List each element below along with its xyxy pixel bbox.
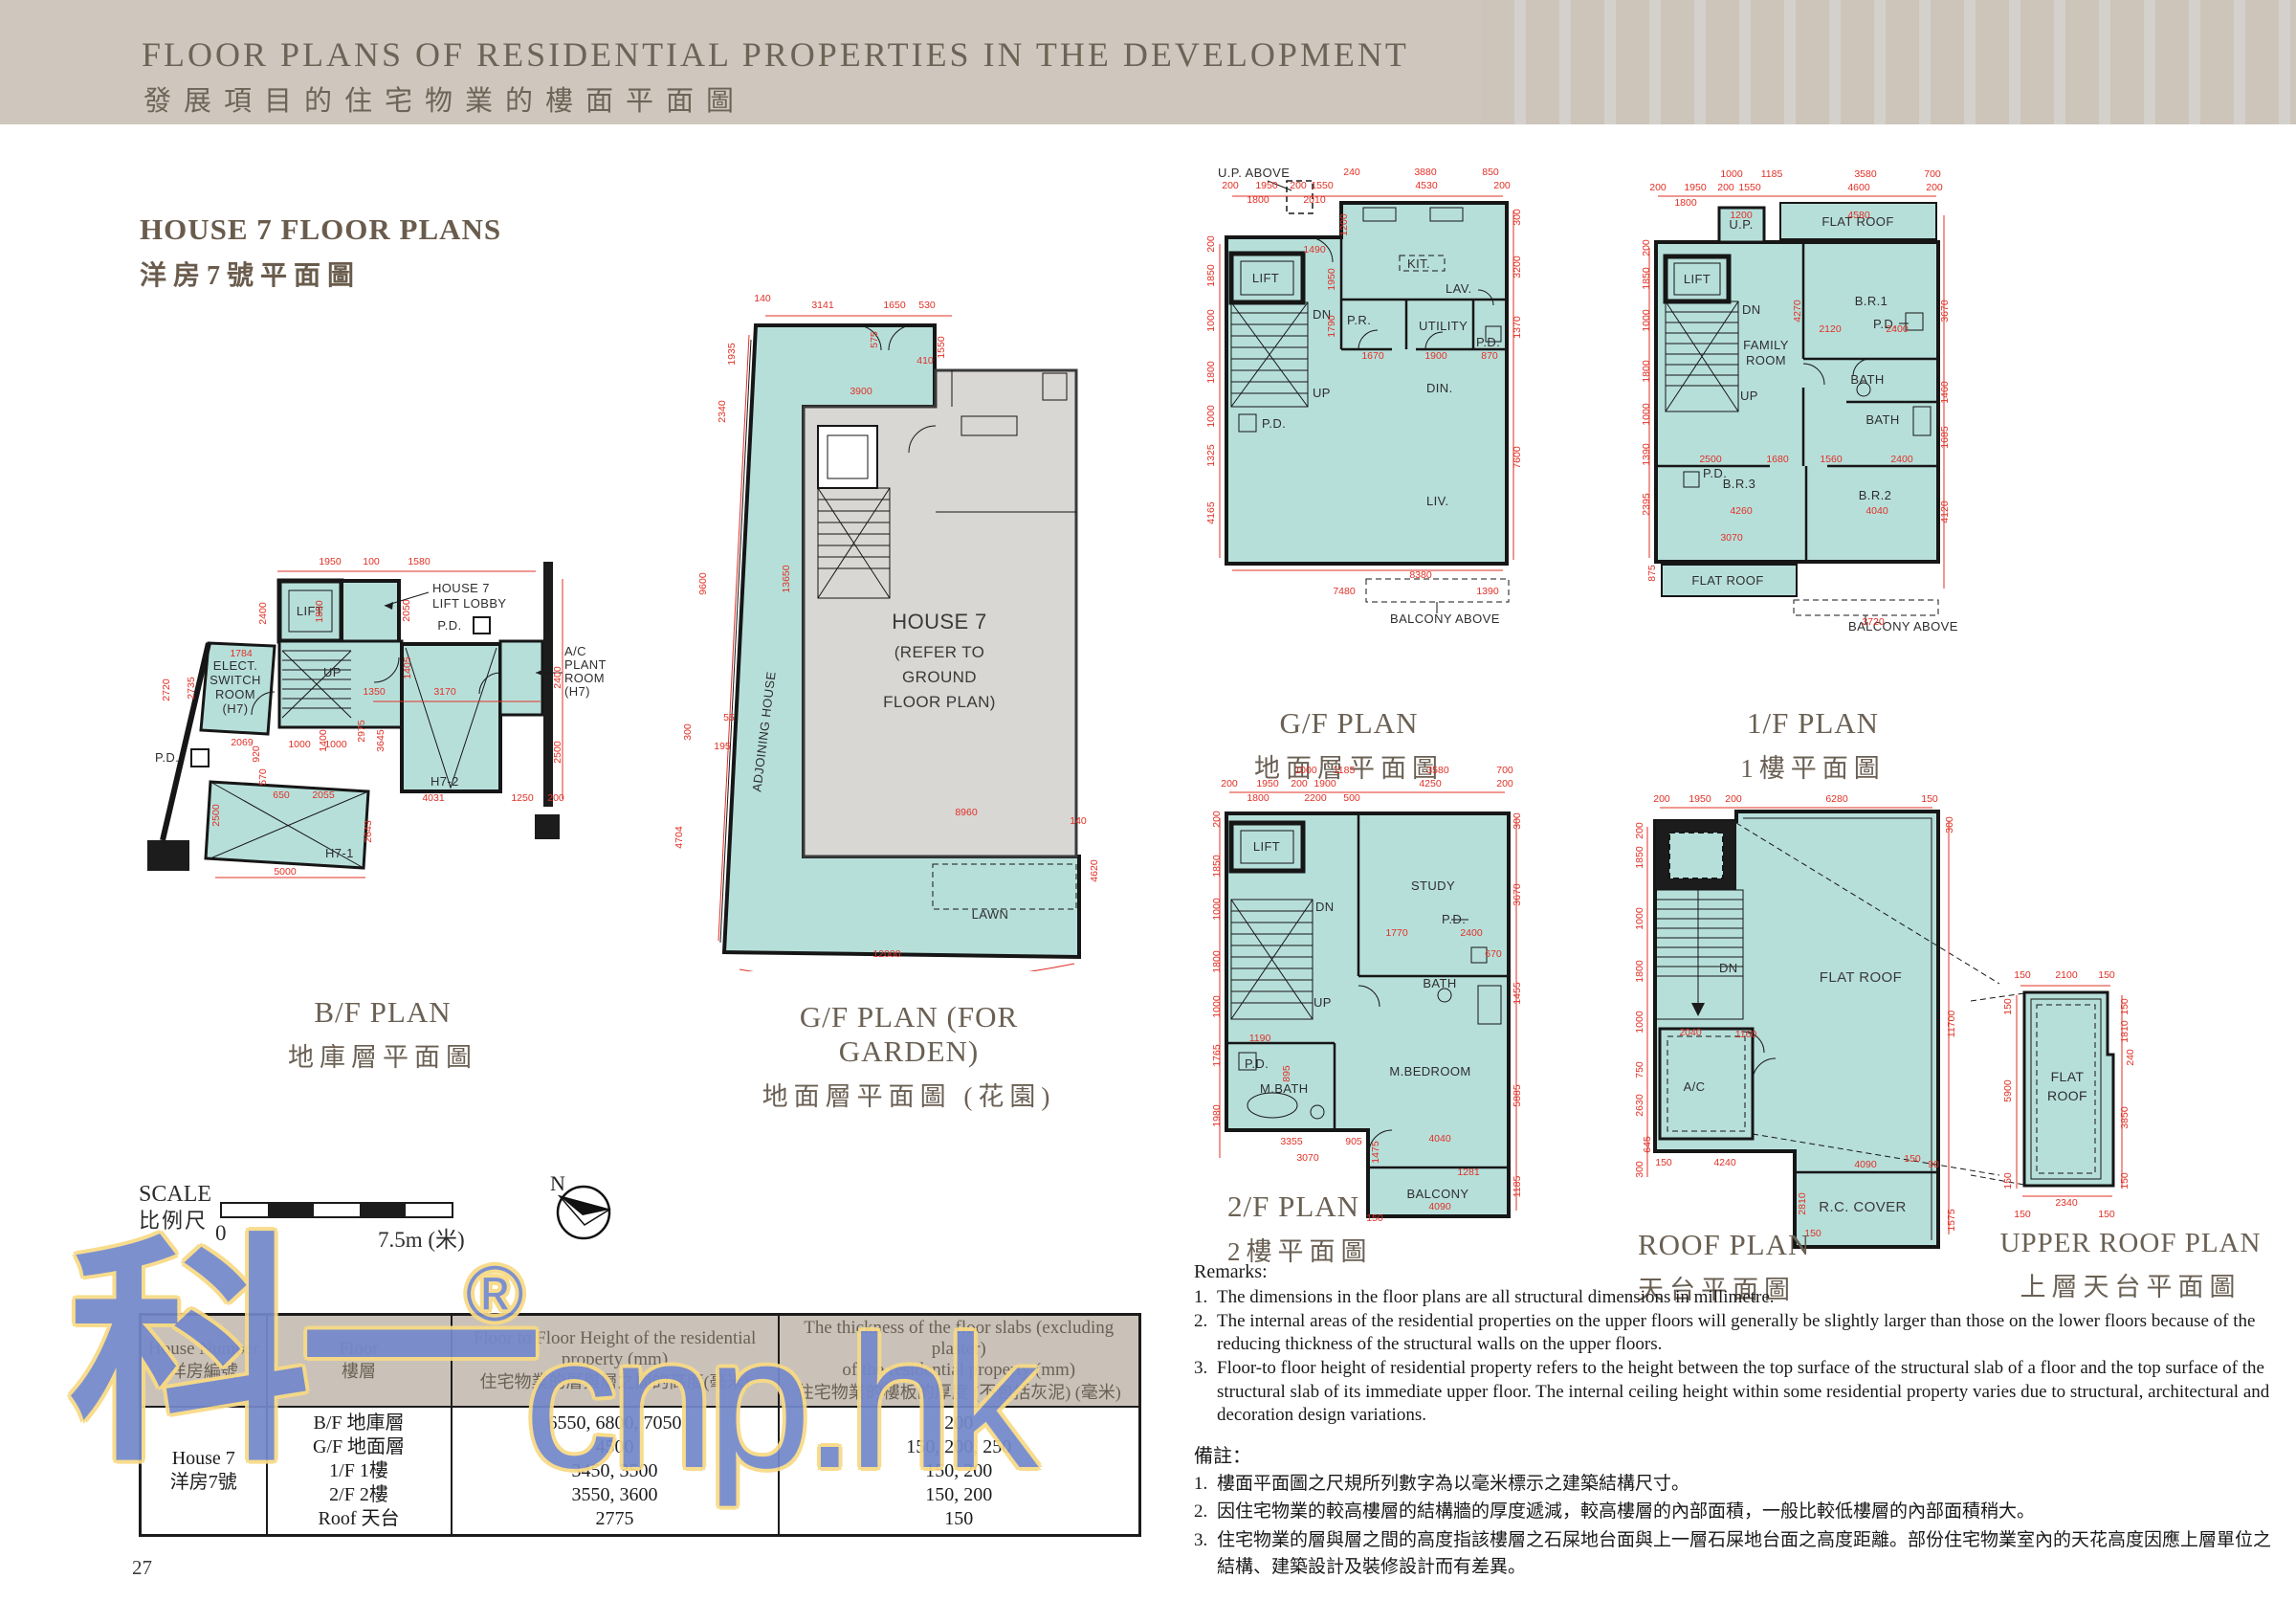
room-label: BATH [1865, 412, 1899, 427]
room-label: LIFT LOBBY [432, 596, 506, 611]
room-label: DIN. [1426, 381, 1453, 395]
dim-label: 200 [1493, 180, 1511, 191]
dim-label: 1455 [1512, 982, 1523, 1005]
dim-label: 4580 [1847, 210, 1870, 221]
dim-label: 1800 [1674, 197, 1697, 209]
dim-label: 870 [1481, 350, 1498, 362]
dim-label: 1800 [1641, 360, 1652, 383]
dim-label: 4260 [1730, 505, 1753, 517]
north-compass-icon: N [541, 1169, 627, 1256]
dim-label: 2395 [1641, 493, 1652, 516]
dim-label: 8960 [955, 807, 978, 818]
dim-label: 1950 [1255, 180, 1278, 191]
dim-label: 240 [2125, 1049, 2136, 1066]
room-label: LAV. [1446, 281, 1472, 296]
remark-item: 3.Floor-to floor height of residential p… [1194, 1357, 2275, 1426]
remarks-title: Remarks: [1194, 1261, 2275, 1283]
dim-label: 2810 [1797, 1192, 1808, 1215]
dim-label: 2050 [401, 599, 412, 622]
room-label: ROOF [2047, 1088, 2087, 1103]
dim-label: 1325 [1205, 444, 1217, 467]
dim-label: 1281 [1457, 1167, 1480, 1178]
dim-label: 7480 [1333, 586, 1356, 597]
dim-label: 1900 [1314, 778, 1336, 789]
dim-label: 1405 [402, 656, 413, 679]
dim-label: 1200 [1338, 213, 1350, 236]
room-label: PLANT [564, 657, 607, 672]
dim-label: 5900 [2002, 1079, 2014, 1102]
dim-label: 2400 [257, 602, 269, 625]
dim-label: 4165 [1205, 501, 1217, 524]
dim-label: 4040 [1865, 505, 1888, 517]
room-label: UP [323, 665, 342, 679]
brochure-page: FLOOR PLANS OF RESIDENTIAL PROPERTIES IN… [0, 0, 2296, 1623]
dim-label: 1000 [1294, 766, 1317, 776]
dim-label: 1950 [1256, 778, 1279, 789]
dim-label: 575 [869, 331, 880, 348]
dim-label: 2120 [1819, 323, 1842, 335]
room-label: P.D. [1476, 335, 1500, 349]
dim-label: 1680 [1766, 454, 1789, 465]
room-label: U.P. ABOVE [1218, 167, 1290, 180]
dim-label: 1800 [1247, 194, 1269, 206]
dim-label: 1000 [1641, 403, 1652, 426]
room-label: H7-2 [430, 774, 459, 789]
room-label: P.D. [437, 618, 461, 633]
dim-label: 300 [1512, 209, 1523, 226]
dim-label: 3580 [1854, 168, 1877, 180]
dim-label: 4620 [1089, 859, 1100, 882]
dim-label: 1350 [363, 686, 386, 698]
dim-label: 200 [1649, 182, 1667, 193]
dim-label: 1935 [726, 343, 738, 366]
dim-label: 1000 [1205, 309, 1217, 332]
room-label: ELECT. [213, 658, 257, 673]
room-label: STUDY [1411, 878, 1455, 893]
dim-label: 3170 [433, 686, 456, 698]
room-label: UP [1313, 386, 1331, 400]
room-label: H7-1 [325, 846, 354, 860]
dim-label: 650 [273, 789, 290, 801]
sf-plan-drawing: LIFT DN UP STUDY P.D. BATH M.BATH P.D. M… [1201, 766, 1535, 1225]
remarks-block: Remarks: 1.The dimensions in the floor p… [1194, 1261, 2275, 1583]
dim-label: 1560 [1820, 454, 1843, 465]
dim-label: 300 [1634, 1161, 1645, 1178]
roof-plan-drawing: DN FLAT ROOF A/C R.C. COVER 200 1950 200… [1631, 794, 1999, 1254]
dim-label: 4530 [1415, 180, 1438, 191]
dim-label: 3200 [1512, 256, 1523, 278]
remark-item: 2.The internal areas of the residential … [1194, 1310, 2275, 1356]
dim-label: 1185 [1761, 168, 1783, 180]
remark-item: 1.The dimensions in the floor plans are … [1194, 1286, 2275, 1309]
dim-label: 200 [1222, 180, 1239, 191]
room-label: (H7) [223, 701, 249, 716]
dim-label: 5885 [1512, 1084, 1523, 1107]
scale-label-en: SCALE [139, 1181, 211, 1208]
dim-label: 1685 [1939, 426, 1951, 449]
dim-label: 1550 [1311, 180, 1334, 191]
dim-label: 4250 [1419, 778, 1442, 789]
room-label: A/C [1684, 1079, 1706, 1094]
dim-label: 150 [2002, 1172, 2014, 1189]
dim-label: 4270 [1792, 300, 1803, 322]
dim-label: 1950 [319, 556, 342, 567]
dim-label: 200 [547, 792, 564, 804]
dim-label: 150 [1921, 794, 1938, 805]
room-label: ROOM [215, 687, 255, 701]
dim-label: 11700 [1946, 1011, 1957, 1038]
dim-label: 4240 [1713, 1157, 1736, 1168]
dim-label: 1850 [1211, 855, 1223, 878]
dim-label: 1000 [1634, 1011, 1645, 1034]
dim-label: 1575 [1946, 1209, 1957, 1232]
room-label: M.BEDROOM [1389, 1064, 1470, 1078]
dim-label: 200 [1634, 822, 1645, 839]
dim-label: 150 [2119, 1172, 2130, 1189]
dim-label: 700 [1924, 168, 1941, 180]
gf-garden-plan-drawing: HOUSE 7 (REFER TO GROUND FLOOR PLAN) ADJ… [665, 282, 1143, 971]
room-label: P.R. [1347, 313, 1371, 327]
dim-label: 4031 [422, 792, 445, 804]
dim-label: 200 [1653, 794, 1670, 805]
lawn-label: LAWN [972, 907, 1009, 922]
dim-label: 2340 [717, 400, 728, 423]
dim-label: 200 [1205, 235, 1217, 253]
gf-garden-plan-caption: G/F PLAN (FOR GARDEN) 地面層平面圖 (花園) [737, 1000, 1081, 1113]
dim-label: 3880 [1414, 167, 1437, 178]
dim-label: 850 [1482, 167, 1499, 178]
dim-label: 300 [1944, 816, 1955, 834]
dim-label: 700 [1496, 766, 1513, 776]
watermark-domain: cnp.hk [524, 1309, 1030, 1497]
dim-label: 2500 [210, 804, 222, 827]
section-heading: HOUSE 7 FLOOR PLANS 洋房7號平面圖 [140, 212, 501, 293]
dim-label: 2975 [356, 720, 367, 743]
dim-label: 1190 [1249, 1033, 1271, 1044]
dim-label: 500 [1343, 792, 1360, 804]
room-label: ROOM [1746, 353, 1786, 367]
section-title-en: HOUSE 7 FLOOR PLANS [140, 212, 501, 247]
room-label: DN [1719, 961, 1738, 975]
room-label: P.D. [1442, 912, 1466, 926]
dim-label: 1580 [408, 556, 430, 567]
remark-item-zh: 2.因住宅物業的較高樓層的結構牆的厚度遞減，較高樓層的內部面積，一般比較低樓層的… [1194, 1499, 2275, 1526]
room-label: UP [1314, 995, 1332, 1010]
dim-label: 7600 [1512, 446, 1523, 469]
room-label: ROOM [564, 671, 605, 685]
dim-label: 2100 [2055, 969, 2078, 981]
room-label: (REFER TO [894, 643, 985, 661]
dim-label: 200 [1926, 182, 1943, 193]
room-label: GROUND [902, 668, 977, 686]
dim-label: 12000 [872, 948, 900, 960]
room-label: P.D. [1245, 1056, 1269, 1071]
room-label: B.R.2 [1859, 488, 1892, 502]
dim-label: 1800 [1211, 950, 1223, 973]
dim-label: 200 [1725, 794, 1742, 805]
header-stripes-decoration [1481, 0, 2296, 124]
dim-label: 150 [2119, 998, 2130, 1015]
dim-label: 410 [916, 355, 934, 367]
dim-label: 3850 [2119, 1106, 2130, 1129]
dim-label: 2643 [363, 820, 374, 843]
dim-label: 1250 [511, 792, 534, 804]
dim-label: 2500 [1699, 454, 1722, 465]
dim-label: 1950 [1689, 794, 1711, 805]
dim-label: 3070 [1720, 532, 1743, 544]
dim-label: 2055 [312, 789, 335, 801]
dim-label: 1160 [1735, 1029, 1757, 1040]
dim-label: 2720 [161, 678, 172, 701]
dim-label: 200 [1496, 778, 1513, 789]
dim-label: 1390 [1476, 586, 1499, 597]
room-label: BALCONY ABOVE [1390, 611, 1500, 626]
dim-label: 4120 [1939, 500, 1951, 523]
section-title-zh: 洋房7號平面圖 [140, 255, 501, 293]
remark-item-zh: 3.住宅物業的層與層之間的高度指該樓層之石屎地台面與上一層石屎地台面之高度距離。… [1194, 1527, 2275, 1582]
dim-label: 150 [2014, 969, 2031, 981]
dim-label: 1670 [1361, 350, 1384, 362]
dim-label: 195 [714, 741, 731, 752]
room-label: DN [1742, 302, 1761, 317]
dim-label: 875 [1646, 565, 1658, 582]
dim-label: 200 [1290, 180, 1307, 191]
dim-label: 1900 [1424, 350, 1447, 362]
dim-label: 1850 [314, 600, 325, 623]
room-label: FLAT ROOF [1691, 573, 1763, 588]
dim-label: 3645 [375, 729, 386, 752]
dim-label: 3141 [811, 300, 834, 311]
dim-label: 895 [1281, 1065, 1292, 1082]
dim-label: 1000 [1641, 309, 1652, 332]
dim-label: 200 [1291, 778, 1308, 789]
dim-label: 3900 [850, 386, 872, 397]
dim-label: 645 [1642, 1136, 1653, 1153]
dim-label: 1370 [1512, 316, 1523, 339]
room-label: P.D. [1703, 466, 1727, 480]
dim-label: 905 [1345, 1136, 1362, 1147]
dim-label: 2040 [1679, 1027, 1702, 1038]
dim-label: 9600 [697, 572, 709, 595]
north-label: N [550, 1171, 565, 1195]
dim-label: 2400 [1460, 927, 1483, 939]
dim-label: 3670 [1939, 300, 1951, 322]
dim-label: 1550 [936, 336, 947, 359]
room-label: LIFT [1252, 271, 1279, 285]
dim-label: 1770 [1385, 927, 1408, 939]
dim-label: 1390 [1641, 443, 1652, 466]
room-label: FLAT ROOF [1820, 969, 1902, 986]
dim-label: 1000 [1211, 995, 1223, 1018]
ff-plan-drawing: U.P. FLAT ROOF LIFT DN UP FAMILY ROOM B.… [1626, 167, 1980, 641]
dim-label: 1000 [1211, 898, 1223, 921]
dim-label: 150 [2098, 1209, 2115, 1220]
dim-label: 1850 [1641, 267, 1652, 290]
watermark-registered-icon: ® [466, 1250, 523, 1340]
dim-label: 3720 [1862, 616, 1885, 628]
bf-plan-caption: B/F PLAN 地庫層平面圖 [239, 995, 526, 1074]
room-label: KIT. [1407, 256, 1430, 271]
room-label: B.R.3 [1723, 477, 1756, 491]
dim-label: 8380 [1409, 569, 1432, 581]
dim-label: 3355 [1280, 1136, 1303, 1147]
dim-label: 2630 [1634, 1094, 1645, 1117]
remarks-title-zh: 備註： [1194, 1440, 2275, 1468]
dim-label: 13650 [781, 565, 792, 592]
dim-label: 1784 [230, 648, 253, 659]
dim-label: 140 [1070, 815, 1087, 827]
room-label: FAMILY [1743, 338, 1789, 352]
dim-label: 670 [1485, 948, 1502, 960]
dim-label: 2735 [186, 677, 197, 700]
room-label: R.C. COVER [1819, 1199, 1907, 1215]
dim-label: 1650 [883, 300, 906, 311]
room-label: M.BATH [1260, 1081, 1309, 1096]
dim-label: 1950 [1684, 182, 1707, 193]
dim-label: 1550 [1738, 182, 1761, 193]
dim-label: 1490 [1303, 244, 1326, 256]
dim-label: 200 [1221, 778, 1238, 789]
page-title-zh: 發展項目的住宅物業的樓面平面圖 [143, 78, 746, 119]
dim-label: 150 [2002, 998, 2014, 1015]
room-label: (H7) [564, 684, 590, 699]
dim-label: 2500 [552, 741, 563, 764]
page-header: FLOOR PLANS OF RESIDENTIAL PROPERTIES IN… [0, 0, 2296, 124]
dim-label: 240 [1343, 167, 1360, 178]
dim-label: 200 [1641, 239, 1652, 256]
dim-label: 2400 [552, 666, 563, 689]
dim-label: 3580 [1426, 766, 1449, 776]
dim-label: 6280 [1825, 794, 1848, 805]
remark-item-zh: 1.樓面平面圖之尺規所列數字為以毫米標示之建築結構尺寸。 [1194, 1471, 2275, 1499]
dim-label: 750 [1634, 1061, 1645, 1078]
ff-plan-caption: 1/F PLAN 1樓平面圖 [1679, 706, 1947, 785]
room-label: DN [1315, 900, 1335, 914]
room-label: A/C [564, 644, 586, 658]
room-label: P.D. [155, 750, 179, 765]
room-label: HOUSE 7 [892, 610, 986, 634]
dim-label: 1950 [1326, 268, 1337, 291]
dim-label: 2200 [1304, 792, 1327, 804]
dim-label: 3670 [1512, 883, 1523, 906]
dim-label: 1765 [1211, 1044, 1223, 1067]
room-label: B.R.1 [1855, 294, 1888, 308]
dim-label: 140 [754, 293, 771, 304]
dim-label: 4040 [1428, 1133, 1451, 1145]
dim-label: 3070 [1296, 1152, 1319, 1164]
dim-label: 5000 [274, 866, 297, 878]
room-label: LIV. [1426, 494, 1449, 508]
dim-label: 2010 [1303, 194, 1326, 206]
scale-bar-segments [220, 1202, 453, 1218]
dim-label: 55 [723, 712, 735, 723]
dim-label: 1850 [1205, 264, 1217, 287]
page-number: 27 [132, 1556, 152, 1580]
dim-label: 4090 [1854, 1159, 1877, 1170]
dim-label: 1400 [318, 729, 329, 752]
room-label: FLAT [2051, 1069, 2085, 1084]
dim-label: 1460 [1939, 381, 1951, 404]
dim-label: 1000 [1205, 405, 1217, 428]
dim-label: 150 [1904, 1153, 1921, 1165]
dim-label: 1800 [1634, 960, 1645, 983]
dim-label: 1000 [288, 739, 311, 750]
dim-label: 1475 [1370, 1141, 1381, 1164]
dim-label: 1810 [2119, 1020, 2130, 1043]
dim-label: 1800 [1205, 361, 1217, 384]
room-label: BATH [1850, 372, 1884, 387]
dim-label: 1000 [1720, 168, 1743, 180]
dim-label: 150 [2098, 969, 2115, 981]
page-title-en: FLOOR PLANS OF RESIDENTIAL PROPERTIES IN… [142, 34, 1409, 75]
room-label: LIFT [1253, 839, 1280, 854]
bf-plan-drawing: LIFT HOUSE 7 LIFT LOBBY ELECT. SWITCH RO… [134, 522, 622, 971]
dim-label: 90 [1928, 1159, 1939, 1170]
dim-label: 200 [1211, 811, 1223, 828]
room-label: SWITCH [210, 673, 261, 687]
sf-plan-caption: 2/F PLAN 2樓平面圖 [1227, 1189, 1514, 1268]
dim-label: 570 [257, 768, 269, 786]
upper-roof-plan-drawing: FLAT ROOF 150 2100 150 150 1810 240 3850… [1971, 909, 2286, 1234]
dim-label: 920 [251, 745, 262, 763]
room-label: BATH [1423, 976, 1456, 990]
dim-label: 1200 [1730, 210, 1753, 221]
watermark-kanji: 科一 [69, 1234, 532, 1476]
dim-label: 4600 [1847, 182, 1870, 193]
dim-label: 2400 [1890, 454, 1913, 465]
dim-label: 530 [918, 300, 936, 311]
dim-label: 300 [682, 723, 694, 741]
dim-label: 1980 [1211, 1104, 1223, 1127]
room-label: P.D. [1262, 416, 1286, 431]
dim-label: 1000 [1634, 907, 1645, 930]
dim-label: 150 [2014, 1209, 2031, 1220]
room-label: HOUSE 7 [432, 581, 490, 595]
room-label: LIFT [1684, 272, 1711, 286]
room-label: UTILITY [1419, 319, 1468, 333]
dim-label: 4704 [673, 826, 685, 849]
dim-label: 2400 [1886, 323, 1909, 335]
dim-label: 200 [1717, 182, 1734, 193]
room-label: FLOOR PLAN) [883, 693, 996, 711]
dim-label: 300 [1512, 812, 1523, 830]
dim-label: 2340 [2055, 1197, 2078, 1209]
dim-label: 1185 [1334, 766, 1356, 776]
dim-label: 1800 [1247, 792, 1269, 804]
gf-plan-drawing: U.P. ABOVE LIFT DN UP KIT. LAV. P.R. UTI… [1201, 167, 1535, 636]
dim-label: 1790 [1326, 315, 1337, 338]
dim-label: 1850 [1634, 846, 1645, 869]
dim-label: 150 [1655, 1157, 1672, 1168]
room-label: UP [1740, 389, 1758, 403]
dim-label: 100 [363, 556, 380, 567]
